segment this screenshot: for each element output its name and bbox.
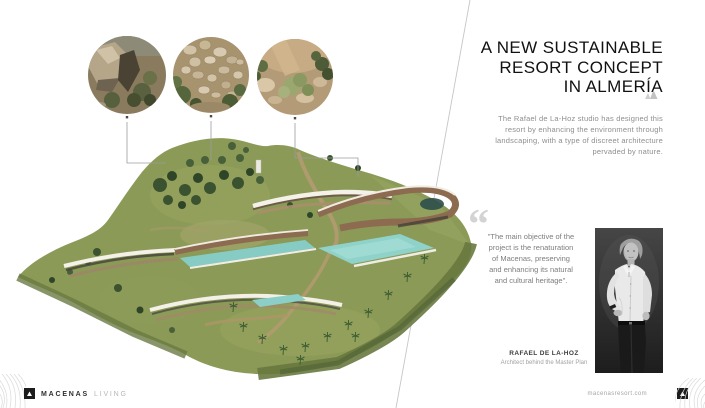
architect-role: Architect behind the Master Plan (492, 360, 596, 366)
brand-suffix: LIVING (94, 391, 128, 398)
title-line-3: IN ALMERÍA (363, 77, 663, 97)
intro-paragraph: The Rafael de La-Hoz studio has designed… (493, 113, 663, 157)
contour-pattern-right (675, 378, 705, 408)
quotation-mark-icon: “ (468, 204, 489, 246)
brand-wordmark: MACENASLIVING (41, 391, 128, 398)
magazine-spread: A NEW SUSTAINABLE RESORT CONCEPT IN ALME… (0, 0, 705, 408)
contour-pattern-left (0, 374, 26, 408)
detail-photo-scrubland (251, 37, 334, 115)
macenas-mark-icon (643, 88, 661, 100)
title-line-2: RESORT CONCEPT (363, 58, 663, 78)
architect-portrait-photo (595, 228, 663, 373)
macenas-logo-square-left (24, 388, 35, 399)
brand-name: MACENAS (41, 391, 89, 398)
title-line-1: A NEW SUSTAINABLE (363, 38, 663, 58)
architect-quote: "The main objective of the project is th… (487, 231, 575, 286)
website-url: macenasresort.com (588, 391, 648, 397)
architect-name: RAFAEL DE LA-HOZ (492, 350, 596, 357)
detail-photo-rocky-outcrop (88, 36, 166, 114)
page-title: A NEW SUSTAINABLE RESORT CONCEPT IN ALME… (363, 38, 663, 97)
detail-photo-stone-texture (170, 37, 250, 114)
portrait-caption: RAFAEL DE LA-HOZ Architect behind the Ma… (492, 350, 596, 366)
